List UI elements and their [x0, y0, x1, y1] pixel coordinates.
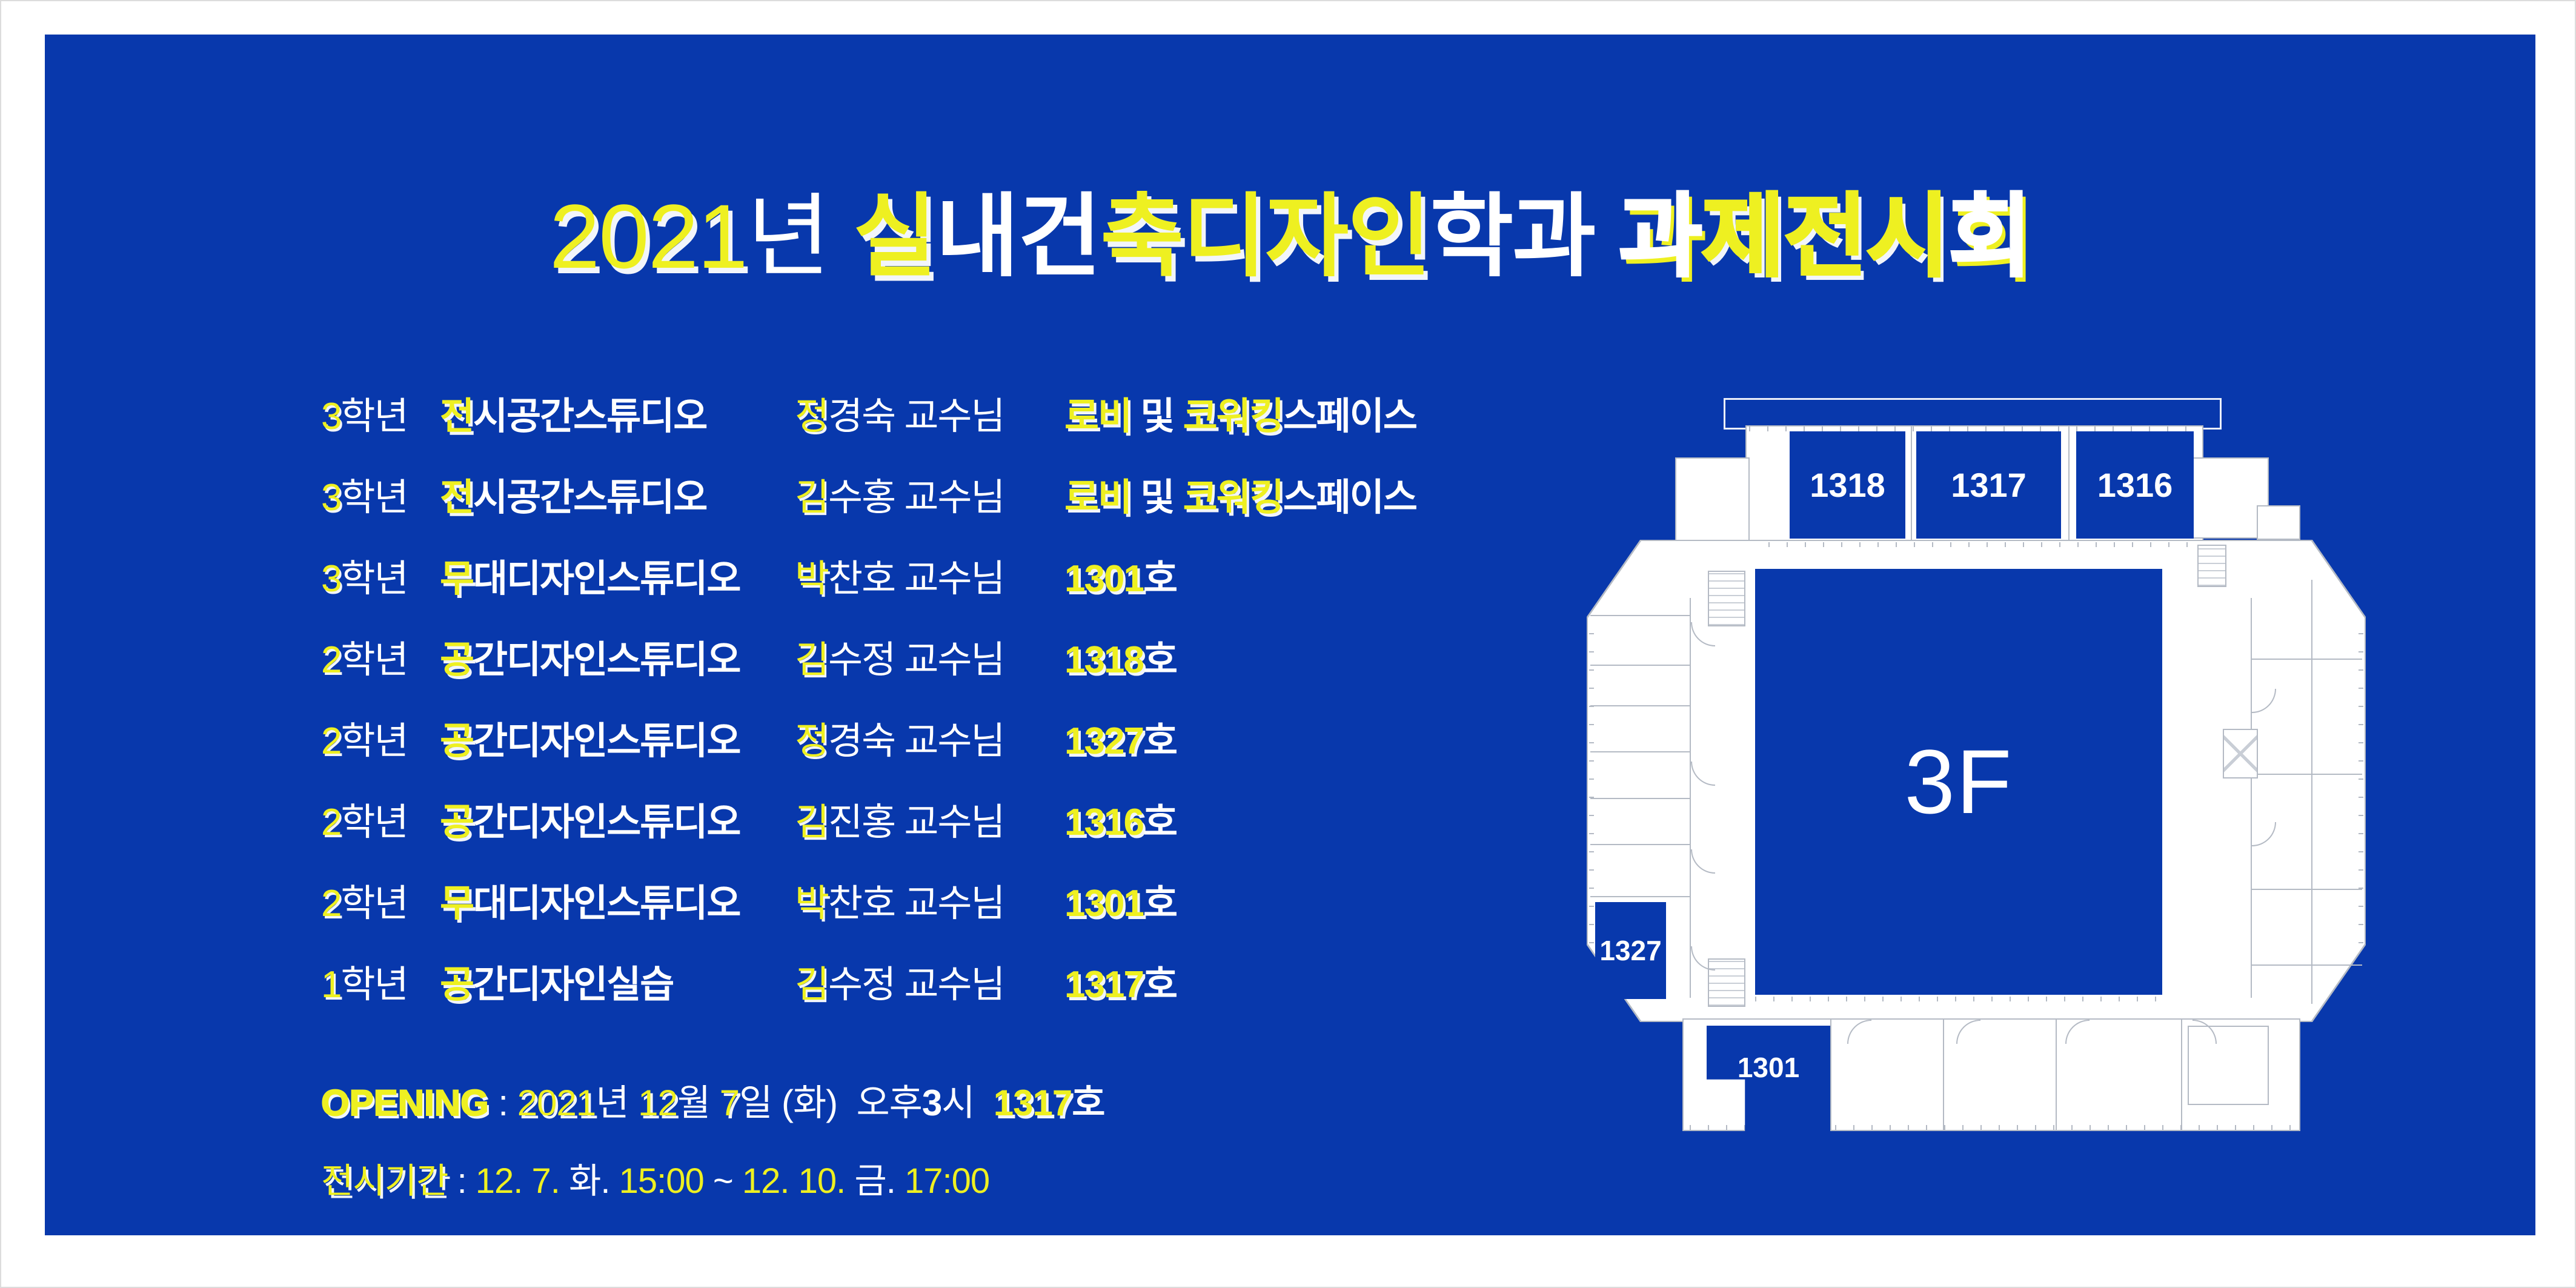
plan-stairs — [1708, 571, 1745, 626]
title-char: 건 — [1018, 185, 1100, 287]
location-segment: 및 — [1131, 396, 1183, 437]
plan-wall-line — [1590, 665, 1690, 666]
title-char: 실 — [853, 185, 935, 287]
professor-name: 경숙 교수님 — [828, 396, 1004, 437]
professor-cell: 김수정 교수님 — [795, 629, 1064, 683]
location-cell: 1301호 — [1064, 548, 1177, 602]
location-segment: 스페이스 — [1283, 396, 1416, 437]
title-char — [1595, 185, 1619, 287]
grade-suffix: 학년 — [340, 639, 407, 681]
plan-wall-line — [1830, 1020, 1831, 1130]
title-char: 학 — [1430, 185, 1512, 287]
opening-segment: : — [489, 1083, 517, 1123]
studio-name: 대디자인스튜디오 — [473, 558, 740, 600]
title-char: 과 — [1619, 185, 1701, 287]
plan-wall-line — [2068, 427, 2070, 540]
location-segment: 1317 — [1064, 964, 1143, 1006]
professor-name: 경숙 교수님 — [828, 720, 1004, 762]
location-segment: 호 — [1143, 883, 1177, 925]
opening-segment: 오후 — [837, 1083, 922, 1123]
studio-cell: 무대디자인스튜디오 — [440, 872, 795, 927]
schedule-row: 3학년전시공간스튜디오김수홍 교수님로비 및 코워킹스페이스 — [321, 453, 1416, 534]
opening-segment: 전시기간 — [321, 1161, 448, 1201]
plan-elevator — [2223, 729, 2258, 778]
studio-name: 시공간스튜디오 — [473, 396, 706, 437]
schedule-row: 2학년무대디자인스튜디오박찬호 교수님1301호 — [321, 859, 1416, 940]
title-char: 과 — [1512, 185, 1595, 287]
title-char: 회 — [1948, 185, 2031, 287]
grade-suffix: 학년 — [340, 802, 407, 843]
schedule-row: 2학년공간디자인스튜디오김수정 교수님1318호 — [321, 616, 1416, 697]
grade-suffix: 학년 — [340, 558, 407, 600]
location-segment: 코워킹 — [1183, 396, 1283, 437]
professor-cell: 박찬호 교수님 — [795, 872, 1064, 927]
room-1318: 1318 — [1790, 431, 1905, 539]
title-char — [829, 185, 854, 287]
title-char: 전 — [1784, 185, 1866, 287]
opening-segment: 화. — [569, 1161, 619, 1201]
professor-cell: 정경숙 교수님 — [795, 385, 1064, 440]
location-segment: 스페이스 — [1283, 477, 1416, 519]
poster-panel: 2021년 실내건축디자인학과 과제전시회 3학년전시공간스튜디오정경숙 교수님… — [45, 35, 2535, 1235]
opening-segment: 월 — [677, 1083, 720, 1123]
opening-segment: 1317 — [994, 1083, 1072, 1123]
room-1316-label: 1316 — [2097, 465, 2173, 505]
exhibition-period-line: 전시기간 : 12. 7. 화. 15:00 ~ 12. 10. 금. 17:0… — [321, 1152, 989, 1203]
title-char: 2 — [648, 185, 697, 287]
location-segment: 및 — [1131, 477, 1183, 519]
title-char: 인 — [1347, 185, 1430, 287]
grade-number: 2 — [321, 639, 340, 681]
professor-name: 찬호 교수님 — [828, 883, 1004, 925]
grade-suffix: 학년 — [340, 477, 407, 519]
studio-first-char: 전 — [440, 477, 473, 519]
professor-surname: 박 — [795, 883, 828, 925]
opening-info-line: OPENING : 2021년 12월 7일 (화) 오후3시 1317호 — [321, 1074, 1104, 1126]
grade-number: 3 — [321, 477, 340, 519]
grade-number: 2 — [321, 883, 340, 925]
location-segment: 호 — [1143, 558, 1177, 600]
plan-wall-line — [2252, 889, 2362, 890]
location-segment: 1327 — [1064, 720, 1143, 762]
plan-wall-line — [2056, 1020, 2057, 1130]
plan-wall-line — [2311, 580, 2312, 1004]
plan-wall-line — [2251, 598, 2252, 998]
professor-name: 수홍 교수님 — [828, 477, 1004, 519]
grade-cell: 3학년 — [321, 385, 440, 440]
location-cell: 1327호 — [1064, 710, 1177, 765]
professor-cell: 정경숙 교수님 — [795, 710, 1064, 765]
studio-first-char: 전 — [440, 396, 473, 437]
opening-segment: : — [448, 1161, 475, 1201]
plan-wall-line — [2252, 659, 2362, 660]
plan-window-ticks — [2359, 622, 2363, 943]
studio-name: 간디자인스튜디오 — [473, 639, 740, 681]
plan-wall-line — [1590, 705, 1690, 706]
plan-window-ticks — [1755, 997, 2162, 1001]
studio-first-char: 무 — [440, 558, 473, 600]
studio-cell: 공간디자인스튜디오 — [440, 710, 795, 765]
grade-cell: 1학년 — [321, 954, 440, 1008]
plan-wall-line — [2252, 964, 2362, 966]
plan-left-block — [1675, 457, 1750, 545]
location-cell: 1316호 — [1064, 791, 1177, 846]
professor-name: 진홍 교수님 — [828, 802, 1004, 843]
grade-number: 1 — [321, 964, 340, 1006]
opening-segment: 년 — [596, 1083, 638, 1123]
opening-segment: 금. — [854, 1161, 905, 1201]
professor-cell: 박찬호 교수님 — [795, 548, 1064, 602]
opening-segment: OPENING — [321, 1083, 489, 1123]
opening-segment: 2021 — [517, 1083, 596, 1123]
location-segment: 1301 — [1064, 883, 1143, 925]
title-char: 디 — [1183, 185, 1265, 287]
location-cell: 1317호 — [1064, 954, 1177, 1008]
grade-cell: 3학년 — [321, 466, 440, 521]
plan-window-ticks — [1749, 427, 2200, 431]
location-cell: 1318호 — [1064, 629, 1177, 683]
location-cell: 로비 및 코워킹스페이스 — [1064, 385, 1416, 440]
studio-name: 간디자인스튜디오 — [473, 720, 740, 762]
location-segment: 로비 — [1064, 477, 1131, 519]
title-char: 0 — [599, 185, 648, 287]
plan-wall-line — [2181, 1020, 2182, 1130]
plan-wall-line — [1911, 427, 1912, 540]
floor-label: 3F — [1904, 729, 2013, 834]
grade-cell: 2학년 — [321, 629, 440, 683]
plan-wall-line — [1590, 798, 1690, 799]
plan-wall-line — [1690, 598, 1691, 998]
exhibition-poster: { "colors":{"panel_blue":"#0838ac","acce… — [0, 0, 2576, 1288]
room-1316: 1316 — [2076, 431, 2194, 539]
opening-segment: 12. 7. — [476, 1161, 569, 1201]
room-1318-label: 1318 — [1810, 465, 1885, 505]
plan-top-right-block — [2257, 505, 2300, 540]
location-segment: 1318 — [1064, 639, 1143, 681]
location-segment: 1301 — [1064, 558, 1143, 600]
professor-surname: 김 — [795, 802, 828, 843]
room-1317-label: 1317 — [1951, 465, 2027, 505]
plan-wall-line — [1590, 896, 1690, 897]
grade-cell: 3학년 — [321, 548, 440, 602]
grade-suffix: 학년 — [340, 883, 407, 925]
grade-suffix: 학년 — [340, 720, 407, 762]
plan-window-ticks — [1589, 622, 1594, 943]
studio-first-char: 공 — [440, 964, 473, 1006]
location-segment: 1316 — [1064, 802, 1143, 843]
grade-suffix: 학년 — [340, 396, 407, 437]
professor-surname: 정 — [795, 720, 828, 762]
location-segment: 호 — [1143, 964, 1177, 1006]
plan-wall-line — [1590, 844, 1690, 845]
opening-segment: 12. 10. — [742, 1161, 854, 1201]
title-char: 2 — [549, 185, 599, 287]
studio-first-char: 공 — [440, 720, 473, 762]
title-char: 시 — [1866, 185, 1948, 287]
professor-surname: 정 — [795, 396, 828, 437]
plan-wall-line — [2252, 774, 2362, 775]
location-segment: 로비 — [1064, 396, 1131, 437]
schedule-row: 2학년공간디자인스튜디오김진홍 교수님1316호 — [321, 778, 1416, 859]
page-title: 2021년 실내건축디자인학과 과제전시회 — [45, 180, 2535, 294]
title-char: 제 — [1701, 185, 1784, 287]
professor-cell: 김수홍 교수님 — [795, 466, 1064, 521]
title-char: 축 — [1100, 185, 1183, 287]
plan-stairs — [2197, 545, 2226, 587]
professor-surname: 김 — [795, 964, 828, 1006]
professor-surname: 김 — [795, 477, 828, 519]
grade-number: 3 — [321, 396, 340, 437]
studio-name: 시공간스튜디오 — [473, 477, 706, 519]
title-char: 내 — [935, 185, 1018, 287]
studio-first-char: 무 — [440, 883, 473, 925]
floor-plan: 1318 1317 1316 3F 1327 1301 — [1587, 398, 2365, 1134]
opening-segment: ~ — [713, 1161, 742, 1201]
opening-segment: 일 (화) — [739, 1083, 837, 1123]
schedule-row: 2학년공간디자인스튜디오정경숙 교수님1327호 — [321, 697, 1416, 778]
location-segment: 호 — [1143, 720, 1177, 762]
grade-suffix: 학년 — [340, 964, 407, 1006]
studio-name: 간디자인스튜디오 — [473, 802, 740, 843]
room-1301-label: 1301 — [1738, 1051, 1799, 1084]
professor-cell: 김수정 교수님 — [795, 954, 1064, 1008]
studio-cell: 전시공간스튜디오 — [440, 385, 795, 440]
schedule-row: 1학년공간디자인실습김수정 교수님1317호 — [321, 940, 1416, 1021]
schedule-list: 3학년전시공간스튜디오정경숙 교수님로비 및 코워킹스페이스3학년전시공간스튜디… — [321, 372, 1416, 1021]
grade-number: 3 — [321, 558, 340, 600]
schedule-row: 3학년전시공간스튜디오정경숙 교수님로비 및 코워킹스페이스 — [321, 372, 1416, 453]
opening-segment: 3 — [922, 1083, 941, 1123]
grade-cell: 2학년 — [321, 710, 440, 765]
plan-wall-line — [1590, 751, 1690, 752]
opening-segment: 호 — [1072, 1083, 1104, 1123]
schedule-row: 3학년무대디자인스튜디오박찬호 교수님1301호 — [321, 534, 1416, 616]
room-1317: 1317 — [1916, 431, 2061, 539]
grade-number: 2 — [321, 720, 340, 762]
studio-cell: 공간디자인스튜디오 — [440, 791, 795, 846]
studio-cell: 전시공간스튜디오 — [440, 466, 795, 521]
studio-first-char: 공 — [440, 802, 473, 843]
studio-first-char: 공 — [440, 639, 473, 681]
plan-wall-line — [1590, 615, 1690, 616]
opening-segment: 15:00 — [619, 1161, 713, 1201]
opening-segment: 17:00 — [905, 1161, 989, 1201]
professor-name: 수정 교수님 — [828, 964, 1004, 1006]
title-char: 년 — [747, 185, 829, 287]
location-cell: 로비 및 코워킹스페이스 — [1064, 466, 1416, 521]
room-1327: 1327 — [1595, 902, 1666, 999]
location-cell: 1301호 — [1064, 872, 1177, 927]
professor-surname: 박 — [795, 558, 828, 600]
studio-cell: 무대디자인스튜디오 — [440, 548, 795, 602]
plan-window-ticks — [1768, 542, 2193, 547]
studio-cell: 공간디자인스튜디오 — [440, 629, 795, 683]
grade-cell: 2학년 — [321, 872, 440, 927]
professor-name: 수정 교수님 — [828, 639, 1004, 681]
title-char: 1 — [697, 185, 746, 287]
location-segment: 호 — [1143, 639, 1177, 681]
grade-number: 2 — [321, 802, 340, 843]
professor-cell: 김진홍 교수님 — [795, 791, 1064, 846]
professor-name: 찬호 교수님 — [828, 558, 1004, 600]
studio-cell: 공간디자인실습 — [440, 954, 795, 1008]
grade-cell: 2학년 — [321, 791, 440, 846]
studio-name: 대디자인스튜디오 — [473, 883, 740, 925]
opening-segment: 7 — [720, 1083, 739, 1123]
location-segment: 호 — [1143, 802, 1177, 843]
location-segment: 코워킹 — [1183, 477, 1283, 519]
title-char: 자 — [1265, 185, 1347, 287]
room-1327-label: 1327 — [1599, 934, 1661, 967]
professor-surname: 김 — [795, 639, 828, 681]
opening-segment: 시 — [941, 1083, 994, 1123]
central-hall-3f: 3F — [1755, 569, 2162, 995]
plan-wall-line — [1943, 1020, 1944, 1130]
studio-name: 간디자인실습 — [473, 964, 673, 1006]
opening-segment: 12 — [638, 1083, 677, 1123]
